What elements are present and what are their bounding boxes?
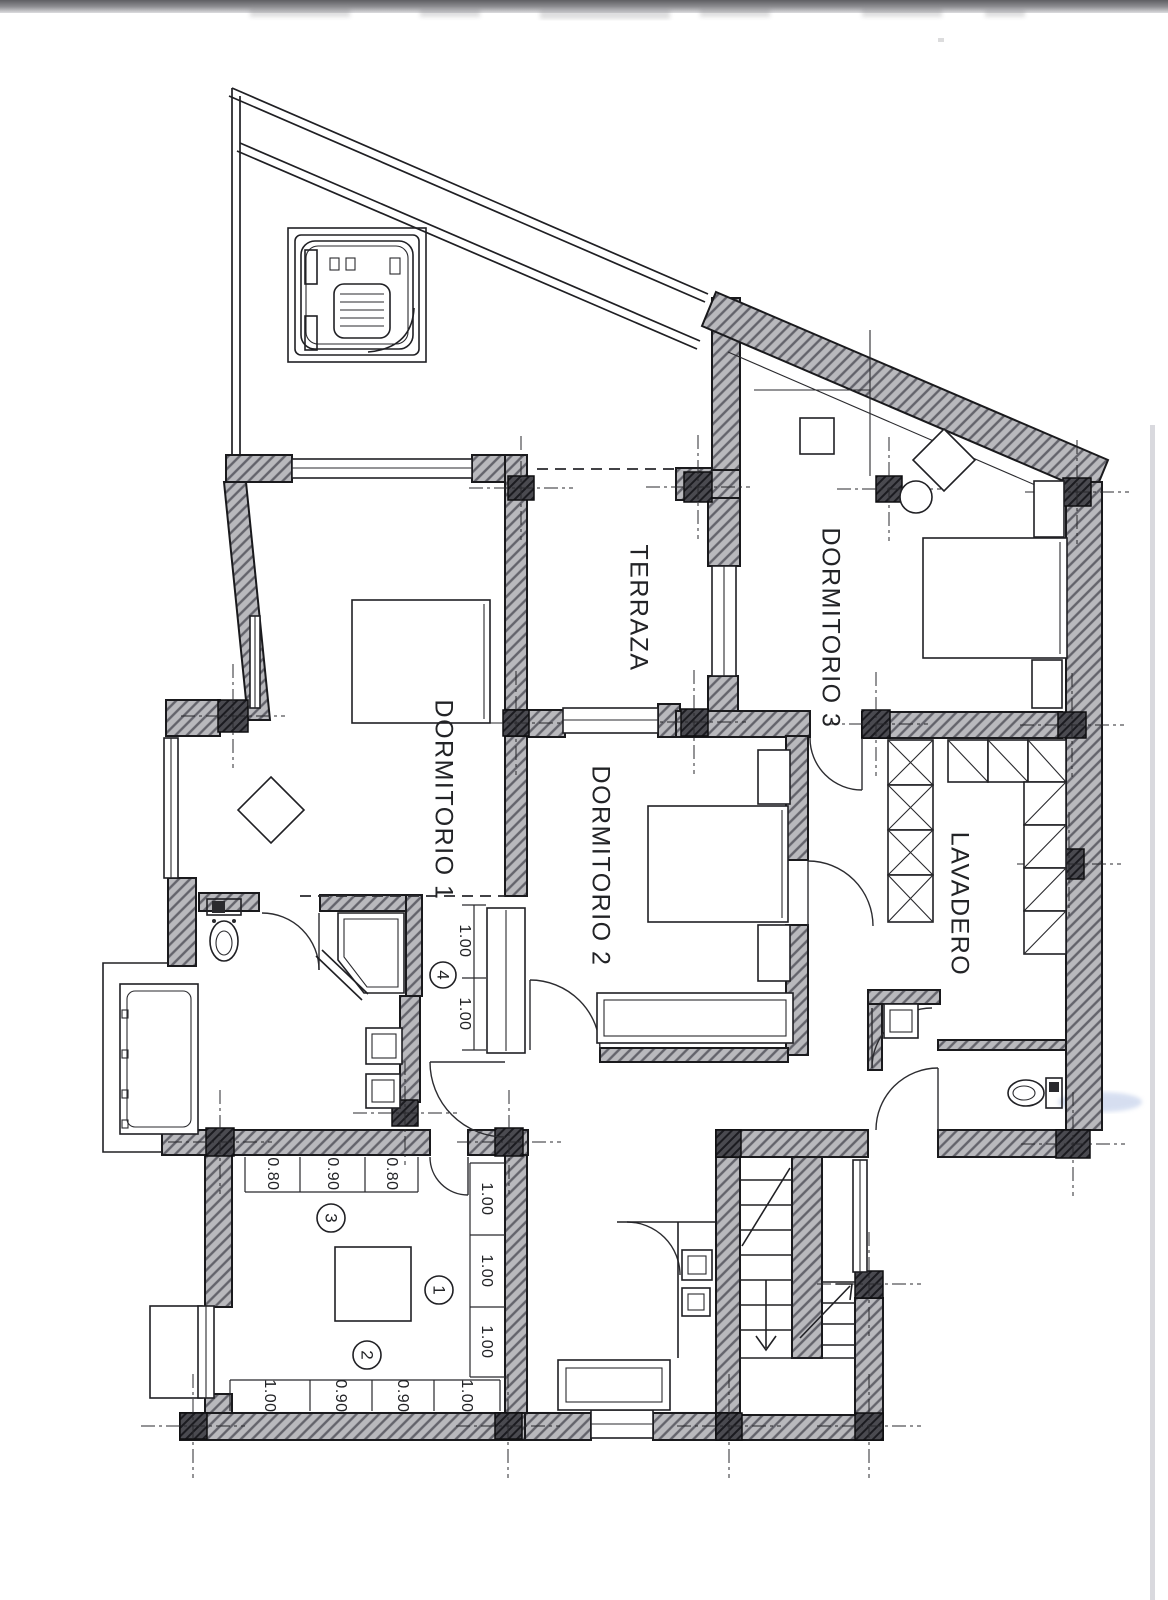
svg-text:4: 4 (434, 970, 453, 979)
room-label-dormitorio-2: DORMITORIO 2 (586, 766, 614, 967)
marker-3: 3 (317, 1204, 345, 1232)
dim-chain-dining-bottom: 1.00 0.90 0.90 1.00 (230, 1379, 500, 1412)
appliance-a (682, 1250, 712, 1280)
window-dorm1-top (292, 459, 472, 478)
dim-value: 0.80 (264, 1157, 281, 1190)
kitchen-bench (558, 1360, 670, 1410)
marker-4: 4 (430, 962, 456, 988)
window-stair-hall (853, 1160, 867, 1272)
dim-value: 1.00 (458, 1379, 475, 1412)
sink-1b (366, 1074, 400, 1108)
corner-shower (316, 913, 404, 1000)
dim-value: 1.00 (261, 1379, 278, 1412)
room-label-dormitorio-1: DORMITORIO 1 (429, 700, 457, 901)
fixture-square-dorm3 (800, 418, 834, 454)
nightstand-dorm3-bottom (1032, 660, 1062, 708)
wc-sink (884, 1004, 918, 1038)
window-kitchen-bottom (591, 1410, 653, 1438)
kitchen-furniture (558, 1222, 716, 1410)
dim-chain-dining-right: 1.00 1.00 1.00 (470, 1163, 505, 1377)
dim-value: 0.90 (332, 1379, 349, 1412)
window-dorm3-terrace (712, 566, 736, 676)
dim-value: 1.00 (478, 1254, 495, 1287)
bed-dorm3 (923, 538, 1067, 658)
stair-direction-arrow-down (756, 1280, 776, 1350)
nightstand-dorm2-top (758, 750, 790, 804)
dim-value: 1.00 (456, 997, 473, 1030)
room-label-dormitorio-3: DORMITORIO 3 (816, 528, 844, 729)
window-terraza-bottom (563, 708, 658, 733)
furniture-dormitorio-1 (238, 600, 525, 1053)
bed-dorm2 (648, 806, 788, 922)
dim-value: 1.00 (478, 1182, 495, 1215)
toilet-2 (1008, 1078, 1062, 1108)
wardrobe-dorm2 (597, 993, 793, 1043)
stool-circle-dorm3 (900, 481, 932, 513)
marker-2: 2 (353, 1341, 381, 1369)
scan-speck (938, 38, 944, 42)
svg-text:1: 1 (430, 1285, 449, 1294)
svg-text:2: 2 (358, 1350, 377, 1359)
x-cabinet-stack (888, 740, 933, 922)
room-label-lavadero: LAVADERO (945, 832, 973, 976)
marker-1: 1 (425, 1276, 453, 1304)
appliance-b (682, 1288, 710, 1316)
dimension-chains: 0.80 0.90 0.80 1.00 1.00 1.00 1.00 0.90 … (230, 905, 505, 1413)
svg-text:3: 3 (322, 1213, 341, 1222)
dim-value: 1.00 (456, 924, 473, 957)
dining-table (335, 1247, 411, 1321)
bay-window-dining (150, 1306, 214, 1398)
paper-edge-line (1150, 425, 1155, 1600)
floorplan-drawing: 0.80 0.90 0.80 1.00 1.00 1.00 1.00 0.90 … (0, 0, 1168, 1600)
floorplan-scan-page: 0.80 0.90 0.80 1.00 1.00 1.00 1.00 0.90 … (0, 0, 1168, 1600)
bathtub-bay (103, 963, 198, 1152)
jacuzzi (288, 228, 426, 362)
lavadero-cabinets (888, 740, 1066, 954)
dim-value: 0.80 (383, 1157, 400, 1190)
stair-steps-right-flight (822, 1282, 855, 1345)
dim-value: 1.00 (478, 1325, 495, 1358)
nightstand-dorm2-bottom (758, 925, 790, 981)
window-dorm1-left (164, 738, 178, 878)
radiator-dorm1 (250, 616, 260, 708)
bed-dorm1 (352, 600, 490, 723)
dim-value: 0.90 (394, 1379, 411, 1412)
dim-chain-hall: 1.00 1.00 (456, 905, 486, 1050)
wc-fixtures (884, 1004, 1062, 1108)
closet-right-column (1024, 782, 1066, 954)
closet-top-row (948, 740, 1066, 782)
room-label-terraza: TERRAZA (624, 544, 652, 671)
bathroom-1-fixtures (103, 899, 404, 1152)
nightstand-dorm3-top (1034, 481, 1064, 537)
wardrobe-dorm1 (487, 908, 525, 1053)
jacuzzi-grate (334, 284, 390, 338)
dim-chain-dining-top: 0.80 0.90 0.80 (245, 1157, 418, 1192)
sink-1a (366, 1028, 402, 1064)
dim-value: 0.90 (324, 1157, 341, 1190)
side-table-diamond-dorm1 (238, 777, 304, 843)
furniture-dormitorio-2 (597, 750, 793, 1043)
